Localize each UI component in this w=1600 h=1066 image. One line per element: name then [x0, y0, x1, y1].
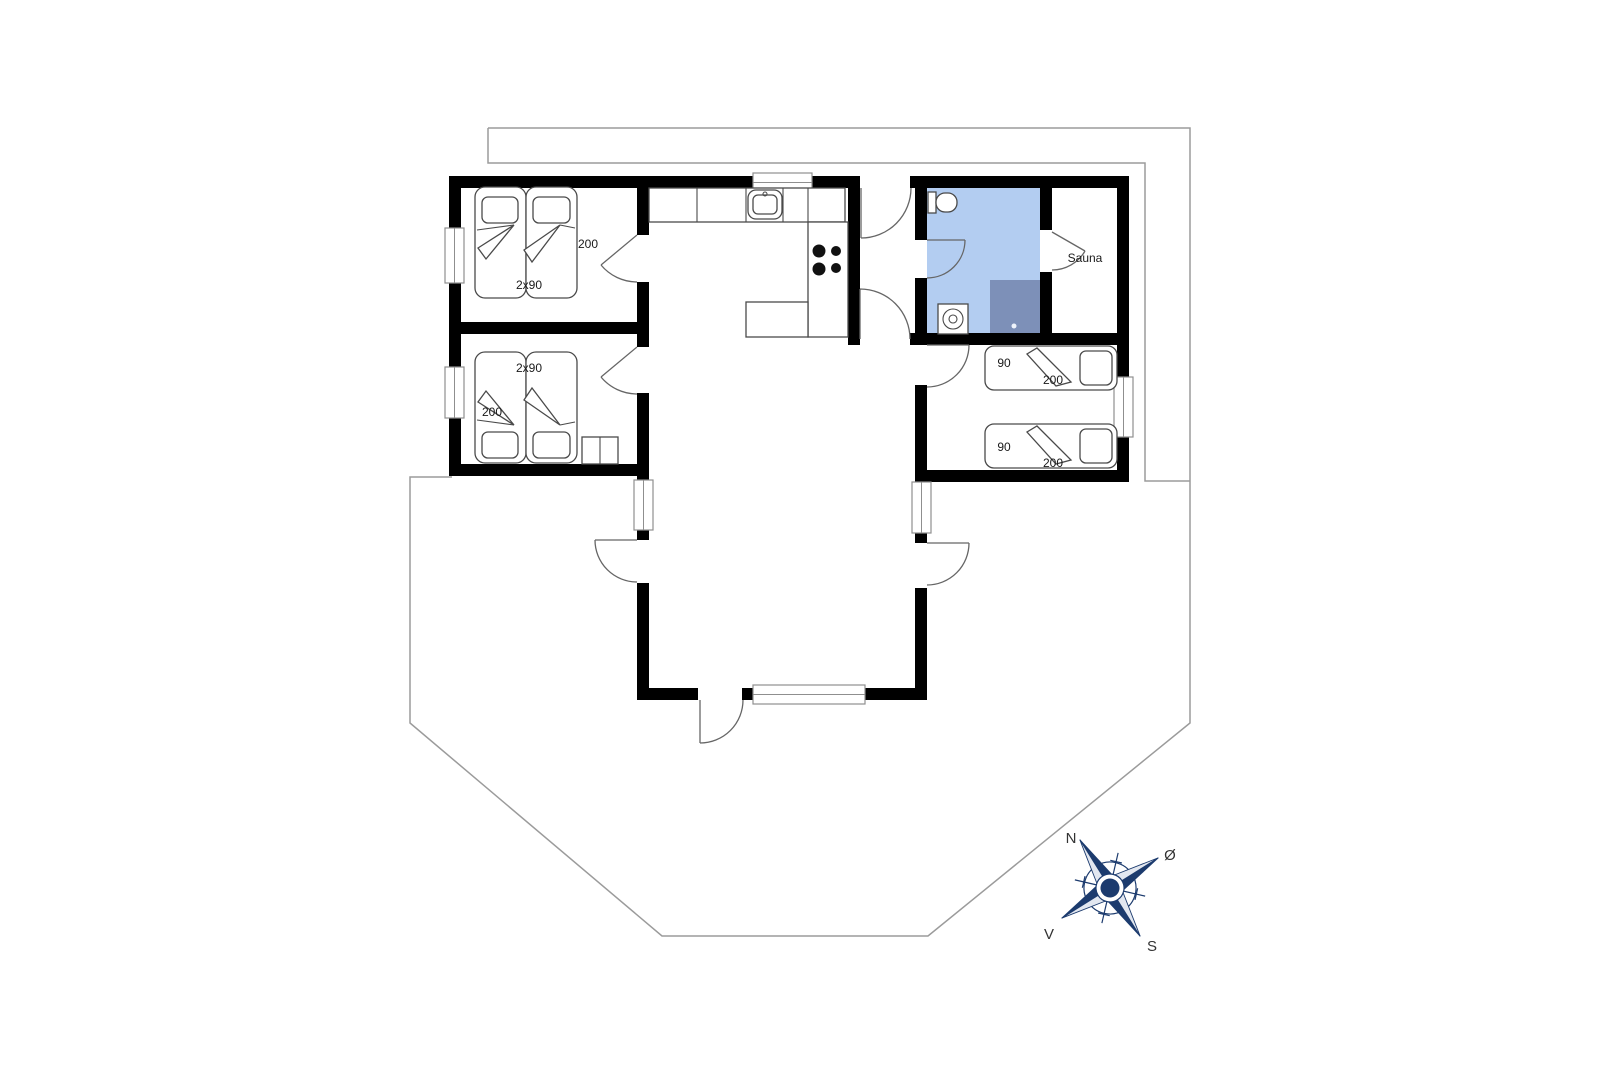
wall-segment: [637, 282, 649, 347]
bed-length-label: 200: [578, 237, 598, 251]
wall-segment: [812, 176, 860, 188]
bed-width-label: 90: [997, 440, 1011, 454]
wall-segment: [915, 588, 927, 700]
bedroom-left-bottom: 2x90 200: [475, 352, 618, 464]
compass-label-south: S: [1147, 938, 1157, 955]
wall-segment: [637, 176, 649, 235]
window: [912, 482, 931, 533]
pillow: [482, 197, 518, 223]
wall-segment: [915, 385, 927, 482]
wall-segment: [637, 583, 649, 700]
window: [753, 685, 865, 704]
pillow: [1080, 429, 1112, 463]
sauna-label: Sauna: [1068, 251, 1103, 265]
window: [445, 228, 464, 283]
stove-burner: [831, 246, 841, 256]
pillow: [482, 432, 518, 458]
wall-segment: [637, 530, 649, 540]
wall-segment: [449, 176, 753, 188]
pillow: [533, 197, 570, 223]
wall-segment: [1117, 437, 1129, 482]
floor-plan-canvas: 200 2x90 2x90 200 S: [0, 0, 1600, 1066]
kitchen-island: [746, 302, 808, 337]
wall-segment: [910, 176, 1129, 188]
window: [634, 480, 653, 530]
bedroom-left-bottom-door: [601, 347, 637, 394]
kitchen: [649, 188, 848, 337]
wall-segment: [449, 283, 461, 367]
bedroom-left-top-door: [601, 235, 637, 282]
bed-width-label: 2x90: [516, 278, 542, 292]
wall-segment: [449, 322, 649, 334]
window: [445, 367, 464, 418]
wall-segment: [742, 688, 753, 700]
kitchen-counter: [649, 188, 845, 222]
wall-segment: [637, 393, 649, 480]
bedroom-right-door: [927, 345, 969, 387]
compass-label-north: N: [1066, 830, 1077, 847]
wall-segment: [915, 176, 927, 240]
wall-segment: [449, 418, 461, 476]
bed-length-label: 200: [1043, 373, 1063, 387]
toilet-tank: [928, 192, 936, 213]
wall-segment: [1117, 176, 1129, 377]
shower-drain: [1012, 324, 1017, 329]
wall-segment: [1040, 188, 1052, 230]
window: [1114, 377, 1133, 437]
wall-segment: [915, 533, 927, 543]
front-door: [861, 188, 911, 238]
pillow: [1080, 351, 1112, 385]
bedroom-right: 90 200 90 200: [985, 346, 1117, 470]
stove-burner: [813, 245, 826, 258]
stove-burner: [831, 263, 841, 273]
wall-segment: [915, 278, 927, 345]
bed-length-label: 200: [482, 405, 502, 419]
stove-burner: [813, 263, 826, 276]
bedroom-left-top: 200 2x90: [475, 187, 598, 298]
pillow: [533, 432, 570, 458]
bed-length-label: 200: [1043, 456, 1063, 470]
west-terrace-door: [595, 540, 637, 582]
wall-segment: [449, 464, 649, 476]
south-terrace-door: [700, 700, 743, 743]
floor-plan-page: 200 2x90 2x90 200 S: [0, 0, 1600, 1066]
compass-label-west: V: [1044, 926, 1054, 943]
wall-segment: [910, 333, 1129, 345]
toilet-bowl: [936, 193, 957, 212]
hall-living-door: [860, 289, 910, 339]
wall-segment: [848, 188, 860, 345]
sink-basin: [753, 195, 777, 214]
sauna: Sauna: [1068, 251, 1103, 265]
kitchen-counter-column: [808, 222, 848, 337]
wall-segment: [449, 176, 461, 228]
wall-segment: [1040, 272, 1052, 345]
wall-segment: [915, 470, 1129, 482]
bed-width-label: 2x90: [516, 361, 542, 375]
east-terrace-door: [927, 543, 969, 585]
bed-width-label: 90: [997, 356, 1011, 370]
compass-label-east: Ø: [1164, 847, 1176, 864]
